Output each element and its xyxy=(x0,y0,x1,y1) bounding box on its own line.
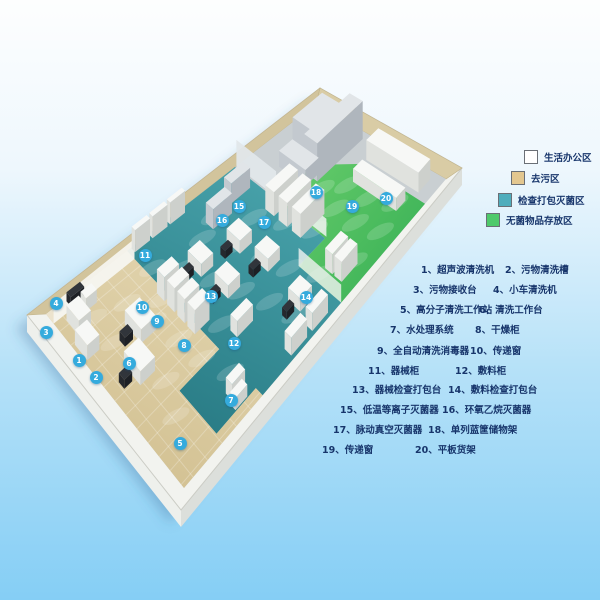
equipment-item: 10、传递窗 xyxy=(470,343,521,357)
legend-label: 去污区 xyxy=(531,171,560,185)
equipment-item: 6、清洗工作台 xyxy=(479,302,543,316)
floor-marker-9: 9 xyxy=(151,315,164,328)
equipment-list-row: 1、超声波清洗机 2、污物清洗槽 xyxy=(421,262,494,275)
equipment-item: 1、超声波清洗机 xyxy=(421,265,494,276)
equipment-item: 12、敷料柜 xyxy=(455,363,506,377)
legend-item-pack-sterilize: 检查打包灭菌区 xyxy=(498,192,585,207)
floor-marker-20: 20 xyxy=(380,192,393,205)
equipment-list-row: 7、水处理系统 8、干燥柜 xyxy=(390,322,454,335)
legend-swatch-office xyxy=(524,150,538,164)
equipment-list-row: 9、全自动清洗消毒器 10、传递窗 xyxy=(377,343,469,356)
equipment-list-row: 13、器械检查打包台 14、敷料检查打包台 xyxy=(352,382,441,395)
legend-label: 生活办公区 xyxy=(544,150,592,164)
equipment-item: 15、低温等离子灭菌器 xyxy=(340,405,439,416)
page-background: 1234567891011121314151617181920 生活办公区 去污… xyxy=(0,0,600,600)
floor-marker-10: 10 xyxy=(136,301,149,314)
floor-marker-8: 8 xyxy=(178,339,191,352)
floor-marker-3: 3 xyxy=(40,326,53,339)
legend-item-office: 生活办公区 xyxy=(524,149,592,164)
legend-swatch-decontam xyxy=(511,171,525,185)
floor-marker-11: 11 xyxy=(139,249,152,262)
legend-label: 检查打包灭菌区 xyxy=(518,193,585,207)
equipment-item: 18、单列蓝筐储物架 xyxy=(428,422,517,436)
equipment-item: 2、污物清洗槽 xyxy=(505,262,569,276)
equipment-list-row: 5、高分子清洗工作站 6、清洗工作台 xyxy=(400,302,492,315)
equipment-item: 13、器械检查打包台 xyxy=(352,385,441,396)
floor-marker-14: 14 xyxy=(300,291,313,304)
floor-marker-2: 2 xyxy=(90,371,103,384)
equipment-item: 16、环氧乙烷灭菌器 xyxy=(442,402,531,416)
equipment-item: 4、小车清洗机 xyxy=(493,282,557,296)
floor-marker-1: 1 xyxy=(73,354,86,367)
floor-marker-13: 13 xyxy=(205,290,218,303)
equipment-item: 20、平板货架 xyxy=(415,442,476,456)
equipment-list-row: 15、低温等离子灭菌器 16、环氧乙烷灭菌器 xyxy=(340,402,439,415)
equipment-list-row: 17、脉动真空灭菌器 18、单列蓝筐储物架 xyxy=(333,422,422,435)
equipment-item: 9、全自动清洗消毒器 xyxy=(377,346,469,357)
floor-marker-7: 7 xyxy=(225,394,238,407)
equipment-item: 11、器械柜 xyxy=(368,366,419,377)
equipment-item: 8、干燥柜 xyxy=(475,322,520,336)
floor-marker-19: 19 xyxy=(346,200,359,213)
legend-swatch-sterile-storage xyxy=(486,213,500,227)
floor-marker-5: 5 xyxy=(174,437,187,450)
floor-marker-6: 6 xyxy=(123,357,136,370)
legend-swatch-pack-sterilize xyxy=(498,193,512,207)
equipment-list-row: 3、污物接收台 4、小车清洗机 xyxy=(413,282,477,295)
legend-item-decontam: 去污区 xyxy=(511,170,560,185)
floor-marker-15: 15 xyxy=(233,200,246,213)
equipment-item: 14、敷料检查打包台 xyxy=(448,382,537,396)
floor-marker-17: 17 xyxy=(258,216,271,229)
floor-marker-12: 12 xyxy=(228,337,241,350)
equipment-item: 19、传递窗 xyxy=(322,445,373,456)
legend-item-sterile-storage: 无菌物品存放区 xyxy=(486,212,573,227)
equipment-item: 3、污物接收台 xyxy=(413,285,477,296)
equipment-list-row: 19、传递窗 20、平板货架 xyxy=(322,442,373,455)
legend-label: 无菌物品存放区 xyxy=(506,213,573,227)
equipment-item: 7、水处理系统 xyxy=(390,325,454,336)
equipment-item: 17、脉动真空灭菌器 xyxy=(333,425,422,436)
floor-marker-18: 18 xyxy=(310,186,323,199)
floor-marker-4: 4 xyxy=(50,297,63,310)
equipment-list-row: 11、器械柜 12、敷料柜 xyxy=(368,363,419,376)
floor-marker-16: 16 xyxy=(216,214,229,227)
